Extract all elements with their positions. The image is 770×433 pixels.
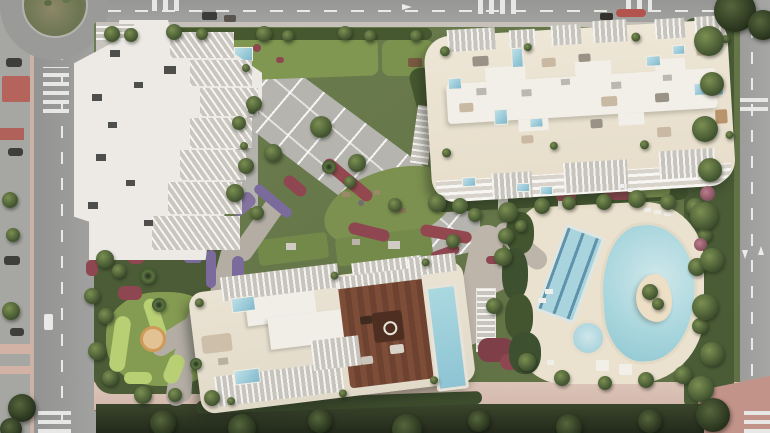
building-west bbox=[74, 20, 262, 260]
tree-49 bbox=[692, 318, 708, 334]
lounger-p6 bbox=[547, 360, 554, 365]
lounger-b1 bbox=[618, 184, 624, 188]
terrace-furniture-5 bbox=[601, 96, 618, 107]
canopy-8 bbox=[696, 398, 730, 432]
ground-pool-2 bbox=[516, 183, 530, 192]
crosswalk-southeast bbox=[744, 408, 770, 433]
minigolf-5 bbox=[124, 372, 152, 384]
tree-39 bbox=[628, 190, 646, 208]
tree-2 bbox=[124, 28, 138, 42]
tree-53 bbox=[700, 72, 724, 96]
pergola-b-t3 bbox=[550, 24, 581, 46]
roof-stub-5 bbox=[618, 112, 645, 126]
lounger-p5 bbox=[538, 298, 546, 303]
tree-3 bbox=[166, 24, 182, 40]
terrace-table-c bbox=[218, 357, 229, 365]
aerial-site-render bbox=[0, 0, 770, 433]
tree-7 bbox=[338, 26, 352, 40]
parked-car-3 bbox=[4, 256, 20, 265]
tree-59 bbox=[700, 342, 724, 366]
plunge-pool-1 bbox=[511, 47, 524, 68]
tree-47 bbox=[638, 372, 654, 388]
canopy-10 bbox=[748, 10, 770, 40]
red-paved-island bbox=[2, 76, 30, 102]
roof-stub-1 bbox=[485, 65, 526, 81]
tree-5 bbox=[256, 26, 272, 42]
pergola-a-7 bbox=[152, 216, 240, 250]
pergola-b-t5 bbox=[654, 18, 685, 40]
terrace-furniture-8 bbox=[715, 109, 728, 124]
tree-31 bbox=[204, 390, 220, 406]
lounger-p1 bbox=[644, 208, 651, 212]
shrub-west-3 bbox=[2, 302, 20, 320]
tree-33 bbox=[498, 228, 514, 244]
tree-32 bbox=[446, 234, 460, 248]
terrace-furniture-10 bbox=[590, 119, 603, 129]
direction-arrow-up bbox=[758, 246, 764, 255]
parked-car-2 bbox=[8, 148, 23, 156]
plunge-pool-5 bbox=[646, 55, 662, 67]
tree-45 bbox=[554, 370, 570, 386]
roof-box-5 bbox=[663, 74, 672, 81]
play-item-3 bbox=[374, 190, 380, 195]
tree-1 bbox=[104, 26, 120, 42]
tree-8 bbox=[364, 30, 376, 42]
cabana-2 bbox=[619, 364, 632, 375]
court-table-3 bbox=[352, 239, 360, 245]
pergola-a-5 bbox=[180, 150, 246, 180]
palm-3 bbox=[152, 298, 166, 312]
terrace-pool-c1 bbox=[231, 296, 257, 314]
tree-20 bbox=[238, 158, 254, 174]
tree-25 bbox=[84, 288, 100, 304]
lounger-p3 bbox=[664, 212, 671, 216]
tree-26 bbox=[98, 308, 114, 324]
tree-36 bbox=[534, 198, 550, 214]
canopy-1 bbox=[150, 410, 176, 433]
deck-firepit bbox=[360, 315, 373, 324]
ac-unit-7 bbox=[144, 220, 153, 226]
tree-55 bbox=[698, 158, 722, 182]
car-dark-1 bbox=[202, 12, 217, 20]
ground-pool-3 bbox=[540, 186, 553, 195]
shrub-west-1 bbox=[2, 192, 18, 208]
tree-57 bbox=[700, 248, 724, 272]
tree-35 bbox=[498, 202, 518, 222]
car-dark-3 bbox=[600, 13, 613, 20]
roof-box-2 bbox=[521, 89, 531, 97]
pergola-c-s2 bbox=[310, 335, 361, 371]
tree-56 bbox=[690, 202, 718, 230]
palm-2 bbox=[140, 268, 156, 284]
tree-23 bbox=[96, 250, 114, 268]
terrace-furniture-1 bbox=[459, 103, 474, 113]
deck-dining-set bbox=[389, 344, 404, 355]
deck-lounge bbox=[361, 356, 374, 365]
ac-unit-2 bbox=[108, 122, 117, 128]
tree-54 bbox=[692, 116, 718, 142]
plunge-pool-2 bbox=[447, 77, 462, 90]
direction-arrow-down bbox=[742, 250, 748, 259]
roof-box-1 bbox=[476, 88, 486, 96]
tree-29 bbox=[134, 386, 152, 404]
tree-15 bbox=[388, 198, 402, 212]
pink-crossing-2 bbox=[0, 366, 32, 374]
pink-crossing-1 bbox=[0, 344, 32, 354]
shrub-west-2 bbox=[6, 228, 20, 242]
tree-46 bbox=[598, 376, 612, 390]
garden-table bbox=[408, 58, 422, 67]
tree-22 bbox=[250, 206, 264, 220]
tree-34 bbox=[515, 220, 527, 232]
tree-21 bbox=[226, 184, 244, 202]
tree-18 bbox=[468, 208, 482, 222]
tree-24 bbox=[112, 264, 126, 278]
tree-27 bbox=[88, 342, 106, 360]
ground-pool-1 bbox=[462, 177, 477, 188]
tree-16 bbox=[428, 194, 446, 212]
tree-6 bbox=[282, 30, 294, 42]
ac-unit-9 bbox=[164, 66, 176, 74]
ac-unit-5 bbox=[88, 202, 98, 209]
terrace-seating-c bbox=[201, 333, 233, 355]
plunge-pool-6 bbox=[672, 45, 686, 56]
crosswalk-left-bottom bbox=[38, 410, 71, 433]
tree-9 bbox=[410, 30, 422, 42]
canopy-7 bbox=[638, 409, 662, 433]
tree-37 bbox=[562, 196, 576, 210]
canopy-6 bbox=[556, 414, 582, 433]
spa-pool bbox=[570, 320, 606, 356]
tree-11 bbox=[264, 144, 282, 162]
terrace-plant-a3 bbox=[240, 142, 248, 150]
tree-40 bbox=[660, 194, 676, 210]
roundabout-shrub-1 bbox=[44, 0, 52, 6]
tree-17 bbox=[452, 198, 468, 214]
play-item-1 bbox=[342, 192, 350, 197]
crosswalk-right bbox=[736, 98, 768, 111]
crosswalk-left-top bbox=[43, 67, 69, 113]
pergola-b-t1 bbox=[447, 27, 496, 52]
terrace-plant-a1 bbox=[242, 64, 250, 72]
sand-circle bbox=[140, 326, 166, 352]
car-white bbox=[44, 314, 53, 330]
traffic-island-red bbox=[616, 9, 646, 17]
terrace-furniture-9 bbox=[657, 127, 672, 138]
court-table-1 bbox=[286, 243, 296, 250]
tree-38 bbox=[596, 194, 612, 210]
ac-unit-8 bbox=[110, 50, 120, 57]
pergola-b-s1 bbox=[563, 159, 629, 193]
tree-28 bbox=[102, 370, 118, 386]
court-table-2 bbox=[388, 241, 400, 249]
tree-13 bbox=[246, 96, 262, 112]
lounger-p2 bbox=[654, 210, 661, 214]
tree-4 bbox=[196, 28, 208, 40]
palm-4 bbox=[190, 358, 202, 370]
palm-1 bbox=[322, 160, 336, 174]
ac-unit-6 bbox=[134, 82, 143, 88]
ac-unit-4 bbox=[126, 180, 135, 186]
canopy-5 bbox=[468, 410, 490, 432]
terrace-furniture-3 bbox=[541, 58, 556, 68]
tree-12 bbox=[348, 154, 366, 172]
ac-unit-3 bbox=[96, 154, 106, 161]
terrace-pool-c2 bbox=[233, 367, 261, 385]
flowering-tree-1 bbox=[700, 186, 715, 201]
tree-44 bbox=[518, 353, 536, 371]
tree-14 bbox=[344, 176, 356, 188]
tree-19 bbox=[232, 116, 246, 130]
roof-box-3 bbox=[561, 79, 570, 86]
canopy-12 bbox=[0, 418, 22, 433]
lane-dash-right bbox=[751, 0, 753, 433]
flowering-tree-2 bbox=[694, 238, 707, 251]
terrace-furniture-2 bbox=[472, 56, 489, 67]
terrace-furniture-4 bbox=[578, 53, 590, 62]
island-plant-2 bbox=[652, 298, 664, 310]
tree-43 bbox=[486, 298, 502, 314]
tree-30 bbox=[168, 388, 182, 402]
cabana-1 bbox=[596, 360, 609, 371]
ac-unit-1 bbox=[92, 94, 102, 101]
canopy-3 bbox=[308, 409, 332, 433]
lounger-p4 bbox=[545, 289, 553, 294]
lane-dash-top bbox=[0, 10, 770, 12]
red-paved-strip bbox=[0, 128, 24, 140]
flower-bed-red-13 bbox=[276, 57, 284, 63]
plunge-pool-3 bbox=[493, 109, 508, 126]
roof-stub-2 bbox=[575, 60, 612, 76]
parked-car-1 bbox=[6, 58, 22, 67]
direction-arrow-right bbox=[402, 4, 412, 10]
pergola-b-t4 bbox=[592, 19, 627, 43]
tree-10 bbox=[310, 116, 332, 138]
roof-box-4 bbox=[611, 82, 621, 90]
plunge-pool-4 bbox=[529, 117, 544, 128]
tree-42 bbox=[494, 248, 512, 266]
tree-58 bbox=[692, 294, 718, 320]
tree-52 bbox=[694, 26, 724, 56]
flower-bed-red-1 bbox=[118, 286, 142, 300]
parked-car-4 bbox=[10, 328, 24, 336]
terrace-furniture-6 bbox=[655, 93, 670, 103]
terrace-furniture-11 bbox=[521, 135, 533, 144]
